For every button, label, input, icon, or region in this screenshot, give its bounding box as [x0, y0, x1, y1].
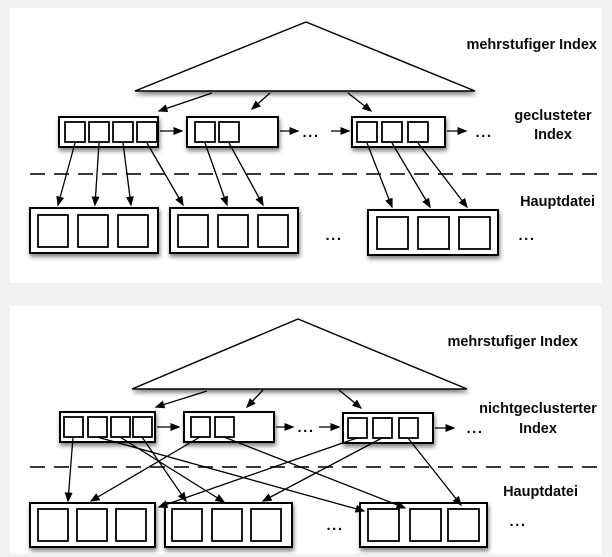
file-record [116, 509, 146, 541]
file-record [38, 509, 68, 541]
index-entry [191, 417, 210, 437]
index-entry [348, 418, 367, 438]
file-record [38, 215, 68, 247]
index-entry [195, 122, 215, 142]
file-record [118, 215, 148, 247]
file-record [368, 509, 399, 541]
index-entry [408, 122, 428, 142]
index-entry [113, 122, 133, 142]
index-entry [215, 417, 234, 437]
ellipsis: ... [518, 227, 535, 244]
index-entry [399, 418, 418, 438]
file-record [448, 509, 479, 541]
label-nichtgeclusterter: nichtgeclusterter [479, 401, 597, 417]
index-entry [357, 122, 377, 142]
label-geclusteter: geclusteter [514, 108, 592, 124]
file-record [258, 215, 288, 247]
label-mehrstufiger-index: mehrstufiger Index [447, 334, 578, 350]
ellipsis: ... [466, 420, 483, 437]
ellipsis: ... [326, 517, 343, 534]
main-file-row: ... ... [30, 208, 536, 255]
label-hauptdatei: Hauptdatei [520, 194, 595, 210]
file-record [172, 509, 202, 541]
index-entry [137, 122, 157, 142]
file-record [212, 509, 242, 541]
ellipsis: ... [325, 227, 342, 244]
file-record [418, 217, 449, 249]
ellipsis: ... [509, 513, 526, 530]
index-entry [382, 122, 402, 142]
index-entry [133, 417, 152, 437]
ellipsis: ... [302, 124, 319, 141]
index-block-row: ... ... [59, 117, 493, 147]
main-file-row: ... ... [30, 503, 527, 547]
index-entry [89, 122, 109, 142]
file-record [459, 217, 490, 249]
index-entry [88, 417, 107, 437]
label-mehrstufiger-index: mehrstufiger Index [466, 37, 597, 53]
ellipsis: ... [475, 124, 492, 141]
diagram-canvas: ... ... ... ... mehrstufiger Index gec [0, 0, 612, 557]
index-entry [111, 417, 130, 437]
label-hauptdatei: Hauptdatei [503, 484, 578, 500]
index-block-row: ... ... [60, 412, 484, 443]
file-record [77, 509, 107, 541]
index-entry [64, 417, 83, 437]
ellipsis: ... [297, 419, 314, 436]
file-record [178, 215, 208, 247]
file-record [251, 509, 281, 541]
index-entry [65, 122, 85, 142]
file-record [377, 217, 408, 249]
file-record [218, 215, 248, 247]
label-index: Index [534, 127, 572, 143]
index-entry [219, 122, 239, 142]
file-record [78, 215, 108, 247]
index-entry [373, 418, 392, 438]
label-index: Index [519, 421, 557, 437]
file-record [410, 509, 441, 541]
